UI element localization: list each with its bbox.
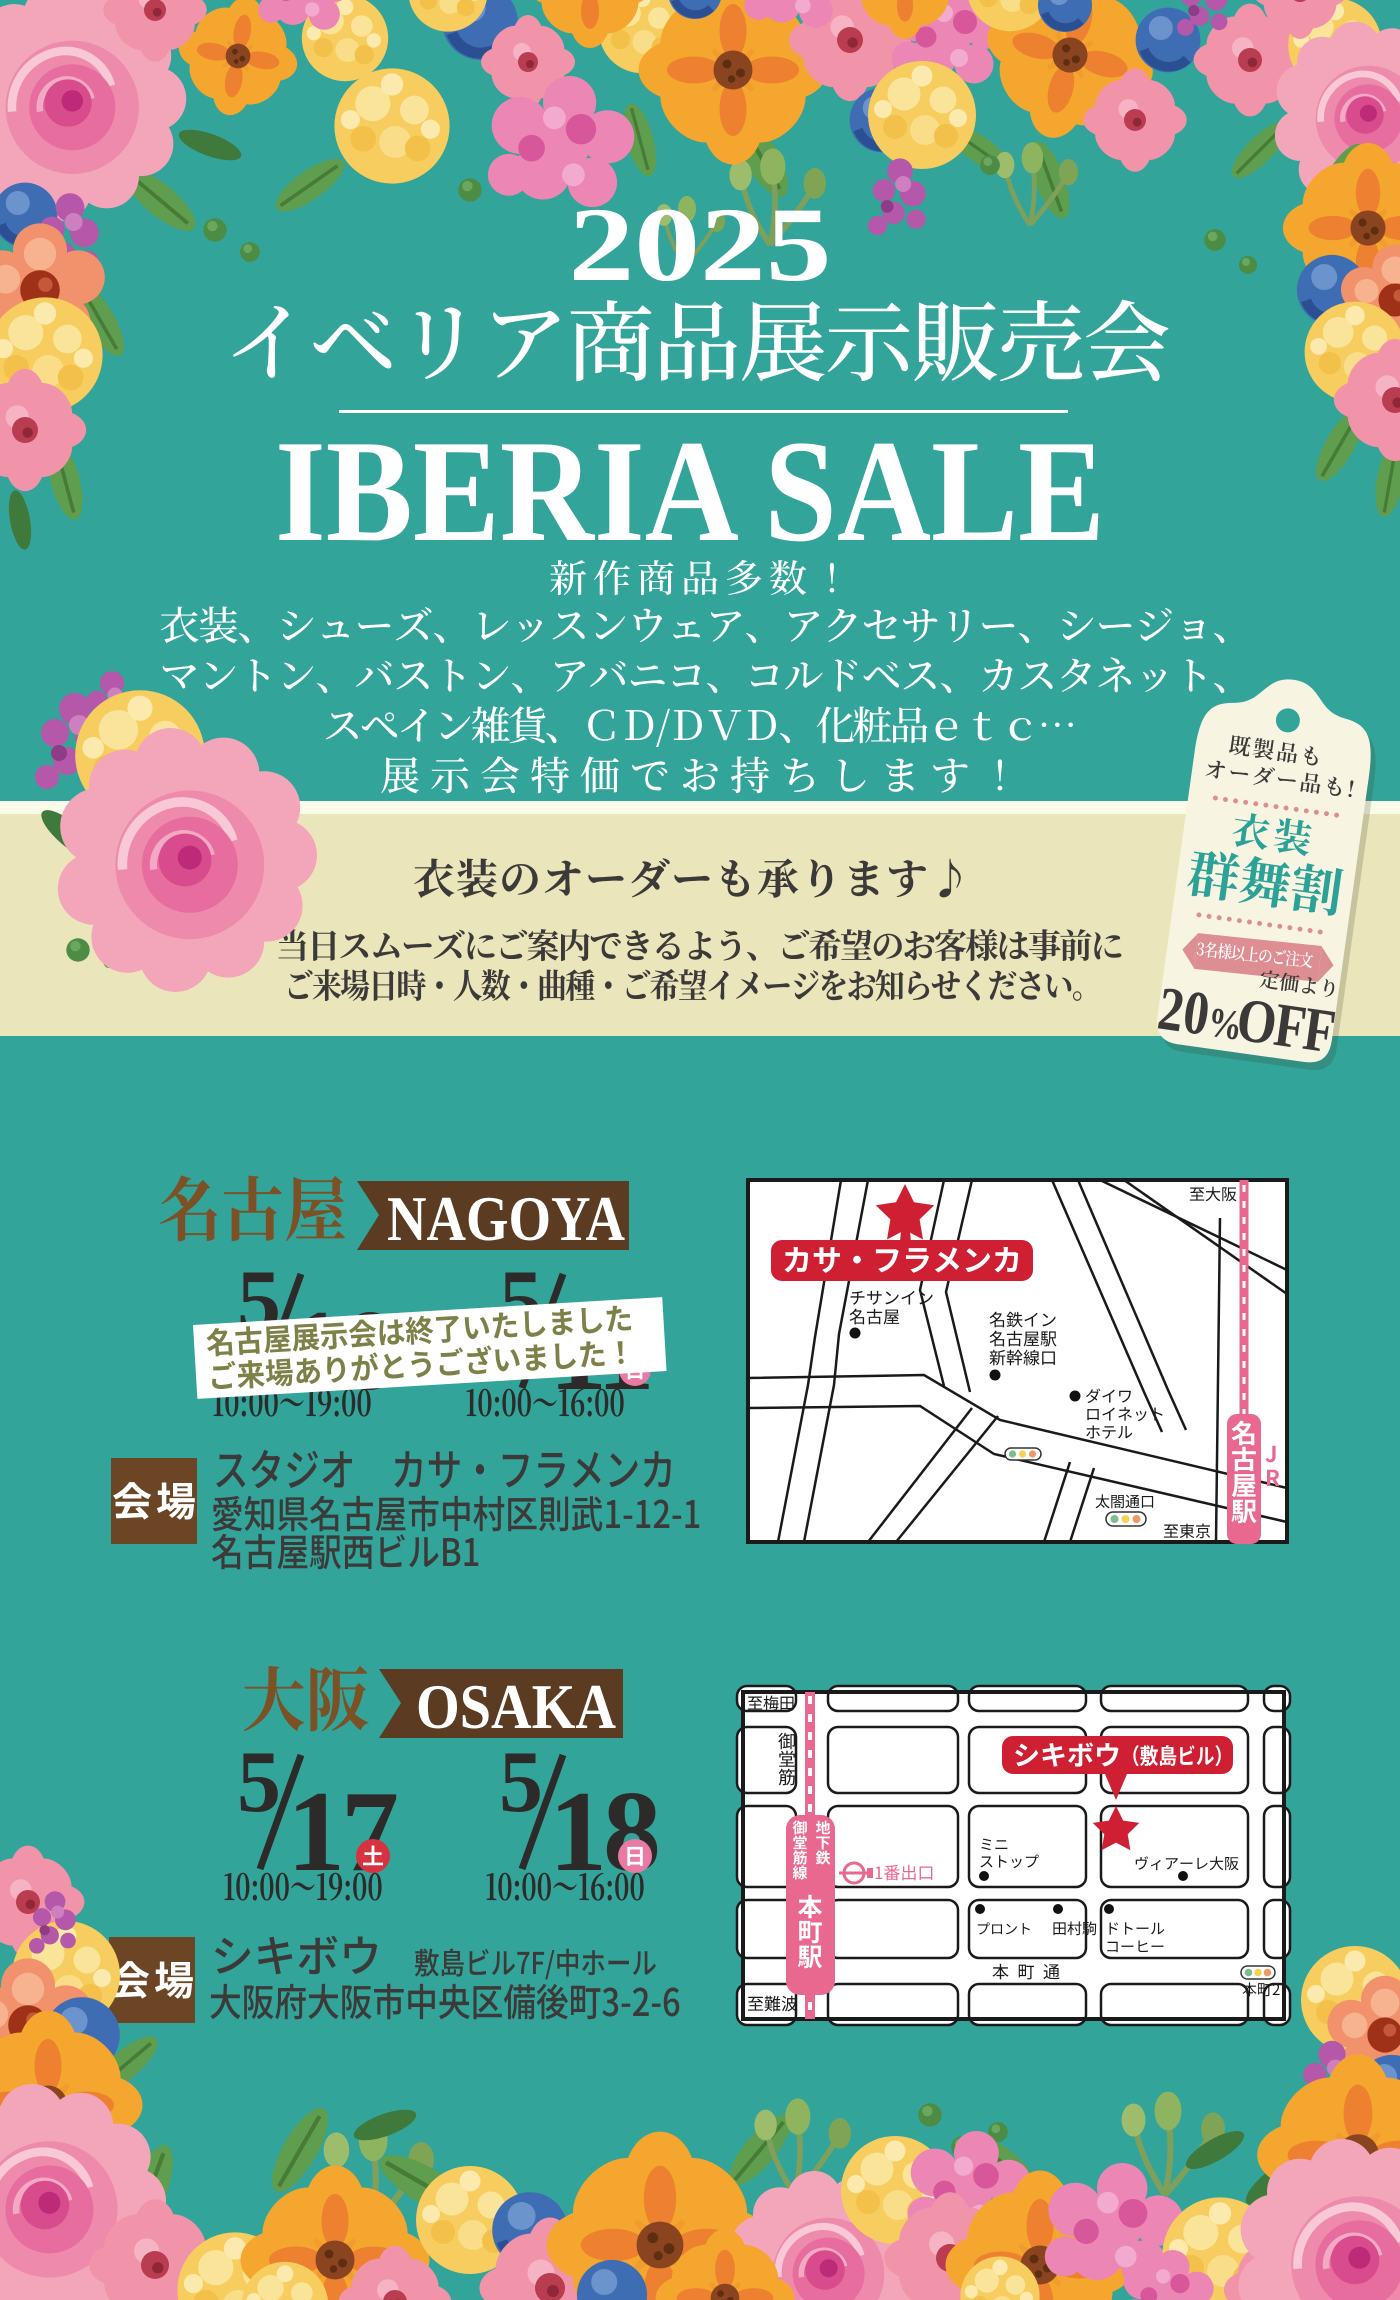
svg-text:5: 5 (237, 1734, 281, 1831)
svg-text:OSAKA: OSAKA (416, 1671, 616, 1742)
svg-text:5: 5 (499, 1734, 543, 1831)
svg-text:OFF: OFF (1233, 985, 1338, 1067)
svg-text:20: 20 (1154, 974, 1214, 1049)
svg-text:17: 17 (287, 1768, 397, 1896)
svg-text:NAGOYA: NAGOYA (387, 1183, 625, 1254)
svg-text:IBERIA SALE: IBERIA SALE (275, 410, 1105, 572)
svg-text:2025: 2025 (569, 186, 832, 303)
